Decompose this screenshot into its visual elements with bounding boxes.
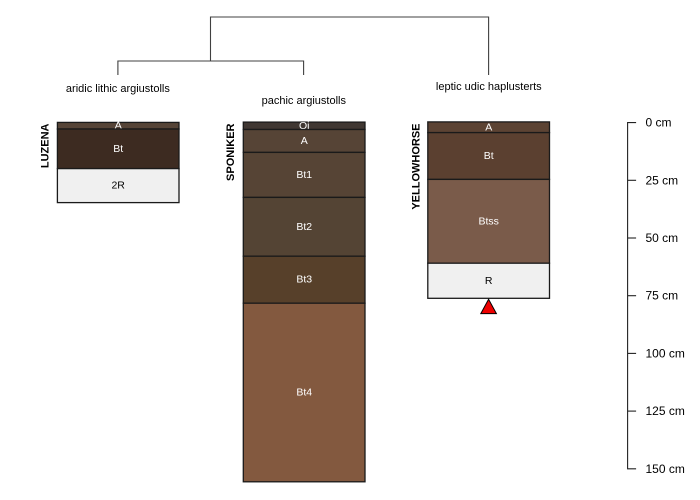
svg-text:SPONIKER: SPONIKER: [225, 123, 237, 181]
svg-text:A: A: [301, 135, 308, 147]
svg-text:2R: 2R: [111, 180, 125, 192]
svg-text:R: R: [485, 275, 493, 287]
svg-text:50 cm: 50 cm: [646, 231, 679, 245]
svg-text:125 cm: 125 cm: [646, 404, 685, 418]
svg-text:Btss: Btss: [478, 215, 498, 227]
svg-text:YELLOWHORSE: YELLOWHORSE: [411, 124, 423, 210]
svg-text:150 cm: 150 cm: [646, 462, 685, 476]
svg-text:LUZENA: LUZENA: [40, 123, 52, 168]
svg-text:Bt2: Bt2: [296, 221, 312, 233]
svg-text:100 cm: 100 cm: [646, 346, 685, 360]
svg-text:25 cm: 25 cm: [646, 173, 679, 187]
svg-text:Bt: Bt: [484, 150, 494, 162]
svg-text:0 cm: 0 cm: [646, 116, 672, 130]
svg-text:aridic lithic argiustolls: aridic lithic argiustolls: [66, 83, 170, 95]
svg-text:pachic argiustolls: pachic argiustolls: [262, 95, 347, 107]
svg-text:A: A: [485, 121, 492, 133]
svg-text:75 cm: 75 cm: [646, 289, 679, 303]
svg-text:Bt3: Bt3: [296, 274, 312, 286]
svg-text:Bt1: Bt1: [296, 169, 312, 181]
svg-text:Bt4: Bt4: [296, 387, 312, 399]
svg-text:leptic udic haplusterts: leptic udic haplusterts: [436, 81, 542, 93]
svg-text:Bt: Bt: [113, 143, 123, 155]
